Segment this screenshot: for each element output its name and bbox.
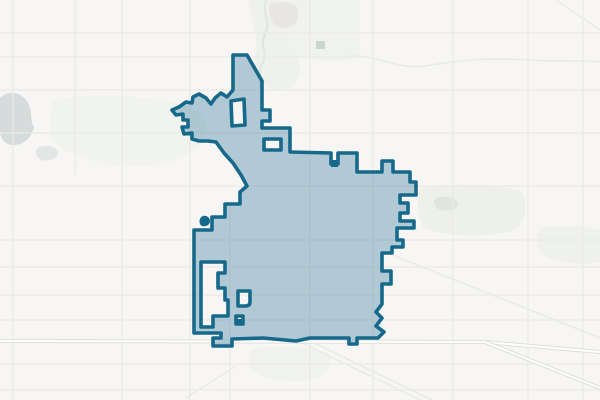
map-canvas[interactable] (0, 0, 600, 400)
green-area-east (418, 185, 526, 236)
boundary-island-ne-square[interactable] (331, 160, 338, 167)
map-viewport[interactable] (0, 0, 600, 400)
green-square-north (316, 41, 325, 49)
screenshot-root (0, 0, 600, 400)
boundary-island-s-square[interactable] (236, 319, 242, 325)
